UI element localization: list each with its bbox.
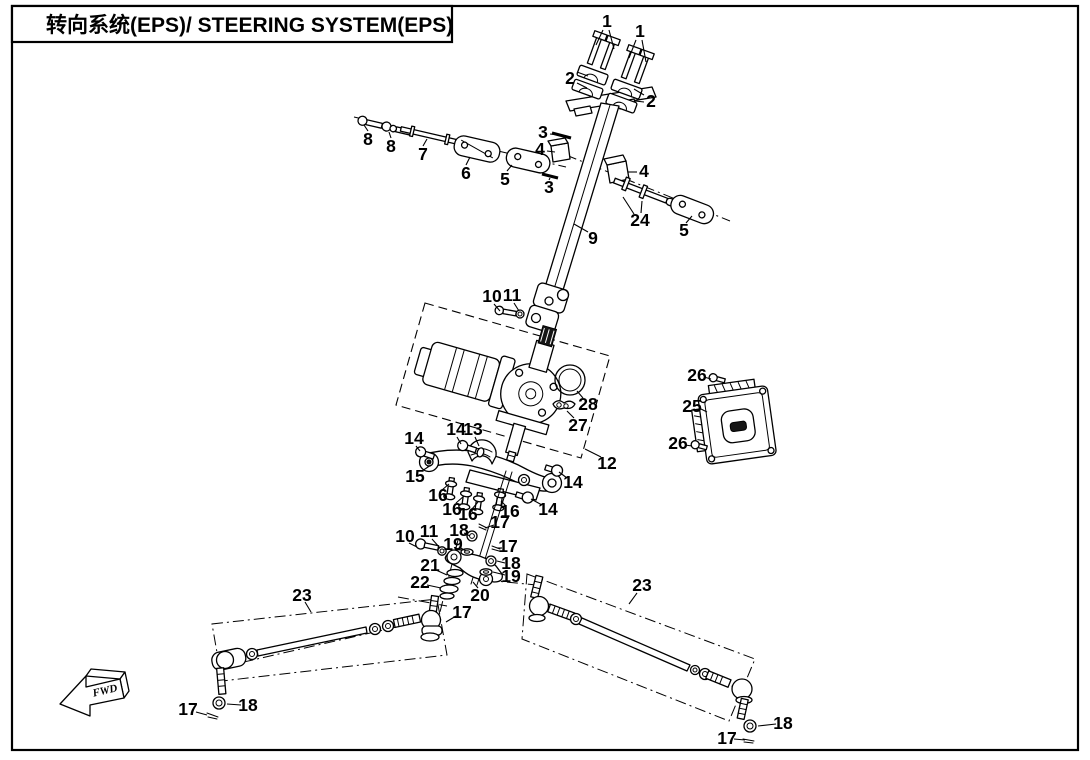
- callout-label: 7: [418, 144, 428, 164]
- ball-stud: [217, 668, 226, 695]
- callout-label: 26: [687, 365, 707, 385]
- callout-label: 10: [482, 286, 502, 306]
- callout-label: 14: [563, 472, 583, 492]
- callout-label: 14: [404, 428, 424, 448]
- brand-badge: [730, 421, 747, 432]
- callout-label: 5: [500, 169, 510, 189]
- callout-label: 15: [405, 466, 425, 486]
- callout-label: 12: [597, 453, 617, 473]
- callout-label: 25: [682, 396, 702, 416]
- callout-label: 26: [668, 433, 688, 453]
- callout-label: 4: [639, 161, 649, 181]
- callout-label: 1: [602, 11, 612, 31]
- callout-label: 3: [544, 177, 554, 197]
- callout-label: 22: [410, 572, 430, 592]
- callout-label: 24: [630, 210, 650, 230]
- callout-label: 18: [238, 695, 258, 715]
- title-box: 转向系统(EPS)/ STEERING SYSTEM(EPS): [12, 6, 453, 42]
- callout-label: 1: [635, 21, 645, 41]
- callout-label: 11: [503, 285, 522, 305]
- callout-label: 14: [538, 499, 558, 519]
- callout-label: 19: [501, 566, 521, 586]
- callout-label: 17: [178, 699, 197, 719]
- callout-label: 23: [292, 585, 312, 605]
- page-title: 转向系统(EPS)/ STEERING SYSTEM(EPS): [46, 13, 453, 37]
- callout-label: 20: [470, 585, 490, 605]
- callout-label: 2: [565, 68, 575, 88]
- callout-label: 18: [773, 713, 793, 733]
- diagram-page: 转向系统(EPS)/ STEERING SYSTEM(EPS): [0, 0, 1090, 760]
- callout-label: 9: [588, 228, 598, 248]
- callout-label: 10: [395, 526, 415, 546]
- callout-label: 6: [461, 163, 471, 183]
- callout-label: 17: [490, 512, 509, 532]
- steering-system-diagram: 转向系统(EPS)/ STEERING SYSTEM(EPS): [0, 0, 1090, 760]
- callout-label: 2: [646, 91, 656, 111]
- callout-label: 23: [632, 575, 652, 595]
- callout-label: 4: [535, 139, 545, 159]
- callout-label: 27: [568, 415, 587, 435]
- callout-label: 17: [452, 602, 471, 622]
- callout-label: 5: [679, 220, 689, 240]
- callout-label: 8: [386, 136, 396, 156]
- callout-label: 17: [717, 728, 736, 748]
- callout-label: 28: [578, 394, 598, 414]
- callout-label: 13: [463, 419, 483, 439]
- callout-label: 11: [420, 521, 439, 541]
- callout-label: 8: [363, 129, 373, 149]
- callout-label: 19: [443, 534, 463, 554]
